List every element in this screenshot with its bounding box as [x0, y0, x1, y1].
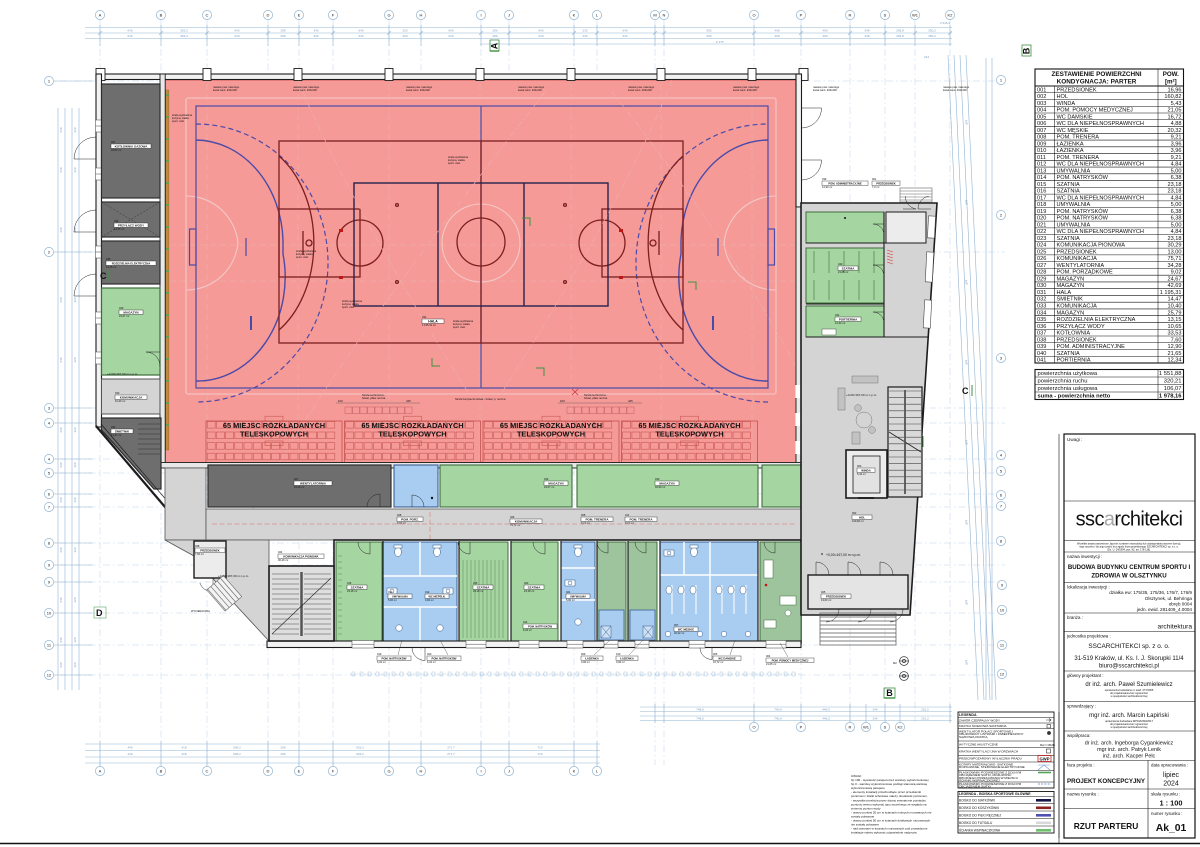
svg-text:038: 038: [195, 544, 200, 548]
svg-text:640: 640: [538, 29, 543, 33]
svg-text:I: I: [480, 768, 481, 773]
svg-text:30,29 m²: 30,29 m²: [278, 558, 288, 562]
svg-text:350,2: 350,2: [928, 29, 936, 33]
svg-text:POM. TRENERA: POM. TRENERA: [629, 517, 653, 521]
svg-text:POM. TRENERA: POM. TRENERA: [1057, 135, 1100, 141]
svg-text:75,71: 75,71: [1168, 256, 1182, 262]
svg-text:10: 10: [47, 610, 52, 615]
svg-text:320: 320: [73, 597, 77, 602]
svg-text:P: P: [800, 12, 803, 17]
svg-text:032: 032: [1037, 297, 1046, 303]
svg-text:w specjalności architektoniczn: w specjalności architektonicznej: [1111, 725, 1148, 729]
svg-text:KOMUNIKACJA: KOMUNIKACJA: [120, 395, 143, 399]
svg-text:suma - powierzchnia netto: suma - powierzchnia netto: [1038, 394, 1111, 400]
svg-text:5,00 m²: 5,00 m²: [388, 598, 397, 602]
svg-text:SZATNIA: SZATNIA: [1057, 182, 1080, 188]
svg-text:021: 021: [1037, 222, 1046, 228]
svg-text:018: 018: [1037, 202, 1046, 208]
svg-text:002: 002: [852, 511, 857, 515]
svg-text:640: 640: [234, 29, 239, 33]
svg-text:9,02 m²: 9,02 m²: [397, 521, 406, 525]
svg-text:235: 235: [582, 29, 587, 33]
svg-text:WENTYLATORNIA: WENTYLATORNIA: [1057, 263, 1105, 269]
svg-text:296: 296: [280, 746, 285, 750]
svg-text:ŚCIANKA WSPINACZKOWA: ŚCIANKA WSPINACZKOWA: [959, 828, 1001, 833]
svg-text:13,00: 13,00: [1168, 249, 1182, 255]
svg-text:640: 640: [59, 597, 63, 602]
svg-text:SZATNIA: SZATNIA: [842, 266, 856, 270]
svg-text:PRZYŁĄCZ WODY: PRZYŁĄCZ WODY: [118, 223, 144, 227]
svg-text:ROZDZIELNIA ELEKTRYCZNA: ROZDZIELNIA ELEKTRYCZNA: [1057, 317, 1136, 323]
svg-text:numer rysunku :: numer rysunku :: [1151, 811, 1182, 816]
svg-text:25,79: 25,79: [1168, 310, 1182, 316]
svg-text:ŁAZIENKA: ŁAZIENKA: [1057, 148, 1084, 154]
svg-text:A: A: [490, 42, 500, 49]
svg-text:010: 010: [616, 652, 621, 656]
svg-text:WC DLA NIEPEŁNOSPRAWNYCH: WC DLA NIEPEŁNOSPRAWNYCH: [1057, 121, 1144, 127]
svg-text:640: 640: [59, 662, 63, 667]
svg-text:2024: 2024: [1163, 781, 1179, 788]
svg-text:640: 640: [59, 357, 63, 362]
svg-text:5,00: 5,00: [1171, 168, 1182, 174]
svg-text:Olsztynek, ul. Behringa: Olsztynek, ul. Behringa: [1145, 596, 1193, 601]
svg-text:296,8: 296,8: [896, 34, 904, 38]
svg-text:PROJEKT KONCEPCYJNY: PROJEKT KONCEPCYJNY: [1067, 778, 1146, 785]
svg-text:31-519 Kraków, ul. Ks. I. J. S: 31-519 Kraków, ul. Ks. I. J. Skorupki 11…: [1074, 656, 1184, 662]
svg-text:kanal went. 400x200: kanal went. 400x200: [813, 88, 837, 92]
svg-text:246: 246: [872, 717, 877, 721]
svg-text:42,69: 42,69: [1168, 283, 1182, 289]
svg-text:640: 640: [59, 637, 63, 642]
svg-text:320,21: 320,21: [1164, 379, 1182, 385]
svg-text:kanal went. 400x200: kanal went. 400x200: [406, 88, 430, 92]
svg-text:A: A: [99, 12, 102, 17]
svg-text:1 195,31: 1 195,31: [1160, 290, 1182, 296]
svg-text:branża :: branża :: [1067, 615, 1083, 620]
svg-text:sport. zasl.: sport. zasl.: [296, 255, 309, 259]
svg-text:035: 035: [106, 257, 111, 261]
svg-text:932,2: 932,2: [356, 746, 364, 750]
svg-text:POM. POMOCY MEDYCZNEJ: POM. POMOCY MEDYCZNEJ: [1057, 108, 1134, 114]
svg-text:5,43: 5,43: [1171, 101, 1182, 107]
svg-text:faza projektu :: faza projektu :: [1067, 763, 1095, 768]
svg-text:362,3: 362,3: [180, 29, 188, 33]
svg-text:ZDROWIA W OLSZTYNKU: ZDROWIA W OLSZTYNKU: [1091, 573, 1167, 580]
svg-text:obręb 0004: obręb 0004: [1169, 602, 1193, 607]
svg-text:710: 710: [537, 752, 542, 756]
svg-text:350,2: 350,2: [928, 34, 936, 38]
svg-text:320: 320: [73, 637, 77, 642]
svg-text:POM. TRENERA: POM. TRENERA: [1057, 155, 1100, 161]
svg-text:160,82 m²: 160,82 m²: [852, 519, 864, 523]
svg-text:B: B: [160, 768, 163, 773]
svg-text:nazwa inwestycji :: nazwa inwestycji :: [1067, 554, 1102, 559]
svg-text:001: 001: [1037, 87, 1046, 93]
svg-text:+0,00=167,00 m n.p.m.: +0,00=167,00 m n.p.m.: [107, 372, 138, 376]
svg-text:PRZEDSIONEK: PRZEDSIONEK: [1057, 87, 1097, 93]
svg-text:E: E: [298, 12, 301, 17]
svg-text:362,3: 362,3: [180, 34, 188, 38]
svg-text:dr inż. arch. Paweł Szumielewi: dr inż. arch. Paweł Szumielewicz: [1085, 682, 1172, 688]
svg-text:100: 100: [560, 399, 565, 403]
svg-text:33,53: 33,53: [1168, 331, 1182, 337]
svg-text:S: S: [884, 12, 887, 17]
svg-text:LEGENDA: LEGENDA: [959, 713, 977, 717]
svg-text:019: 019: [1037, 209, 1046, 215]
svg-text:42,69 m²: 42,69 m²: [655, 485, 665, 489]
svg-text:009: 009: [1037, 141, 1046, 147]
svg-text:SZATNIA: SZATNIA: [1057, 351, 1080, 357]
svg-text:futsal, pilka reczna: futsal, pilka reczna: [584, 396, 608, 400]
svg-text:UMYWALNIA: UMYWALNIA: [1057, 222, 1091, 228]
svg-text:640: 640: [234, 34, 239, 38]
svg-text:OBCIĄŻENIEM SIATKI: OBCIĄŻENIEM SIATKI: [959, 784, 991, 789]
svg-text:[m²]: [m²]: [1165, 79, 1177, 86]
svg-text:A: A: [99, 768, 102, 773]
svg-text:Rw>=45dB: Rw>=45dB: [1040, 743, 1055, 747]
svg-text:G: G: [387, 768, 390, 773]
svg-text:030: 030: [1037, 283, 1046, 289]
svg-text:5,43 m²: 5,43 m²: [857, 472, 866, 476]
svg-text:O: O: [752, 724, 755, 729]
svg-text:14,47: 14,47: [1168, 297, 1182, 303]
svg-text:SZATNIA: SZATNIA: [528, 585, 542, 589]
svg-text:KOTŁOWNIA GAZOWA: KOTŁOWNIA GAZOWA: [115, 144, 149, 148]
svg-text:H: H: [420, 768, 423, 773]
svg-text:14,47 m²: 14,47 m²: [111, 433, 121, 437]
svg-text:D: D: [267, 12, 270, 17]
svg-text:ŁAZIENKA: ŁAZIENKA: [620, 656, 634, 660]
svg-text:446,5: 446,5: [822, 717, 830, 721]
svg-text:TELESKOPOWYCH: TELESKOPOWYCH: [378, 430, 446, 439]
svg-text:418: 418: [181, 752, 186, 756]
svg-text:640: 640: [59, 227, 63, 232]
svg-text:34,28: 34,28: [1168, 263, 1182, 269]
svg-text:014: 014: [523, 620, 528, 624]
svg-text:286: 286: [492, 29, 497, 33]
svg-text:20,32: 20,32: [1168, 128, 1182, 134]
svg-text:KOMUNIKACJA PIONOWA: KOMUNIKACJA PIONOWA: [283, 554, 318, 558]
svg-text:+0,00=167,00 m n.p.m.: +0,00=167,00 m n.p.m.: [846, 393, 877, 397]
svg-text:640: 640: [622, 29, 627, 33]
svg-text:201,2: 201,2: [921, 708, 929, 712]
svg-text:M: M: [653, 12, 656, 17]
svg-text:powierzchnia użytkowa: powierzchnia użytkowa: [1038, 371, 1098, 377]
svg-text:WC MĘSKIE: WC MĘSKIE: [1057, 128, 1089, 134]
svg-text:23,18 m²: 23,18 m²: [473, 589, 483, 593]
svg-text:271,7: 271,7: [447, 746, 455, 750]
svg-text:BOISKO DO FUTSALU: BOISKO DO FUTSALU: [959, 821, 993, 825]
svg-text:C: C: [206, 12, 209, 17]
svg-text:9,21: 9,21: [1171, 155, 1182, 161]
svg-text:320: 320: [73, 547, 77, 552]
svg-text:8 175: 8 175: [716, 40, 724, 44]
svg-text:031: 031: [422, 315, 427, 319]
svg-text:WYCIERACZKA: WYCIERACZKA: [191, 609, 210, 613]
svg-text:w specjalności architektoniczn: w specjalności architektonicznej: [1111, 694, 1148, 698]
svg-text:R: R: [849, 724, 852, 729]
svg-text:006: 006: [1037, 121, 1046, 127]
svg-text:4,84 m²: 4,84 m²: [425, 598, 434, 602]
svg-text:5,00 m²: 5,00 m²: [566, 598, 575, 602]
svg-text:KOMUNIKACJA: KOMUNIKACJA: [515, 519, 538, 523]
svg-text:014: 014: [1037, 175, 1046, 181]
svg-text:PORTIERNIA: PORTIERNIA: [1057, 358, 1091, 364]
svg-text:039: 039: [822, 177, 827, 181]
svg-text:235: 235: [582, 34, 587, 38]
svg-text:R2: R2: [893, 661, 897, 665]
svg-text:lokalizacja inwestycji :: lokalizacja inwestycji :: [1067, 585, 1110, 590]
svg-text:320: 320: [402, 29, 407, 33]
svg-text:K2: K2: [948, 12, 954, 17]
svg-text:SZATNIA: SZATNIA: [1057, 189, 1080, 195]
svg-text:J: J: [508, 768, 510, 773]
svg-text:kanal went. 400x200: kanal went. 400x200: [293, 88, 317, 92]
svg-text:246: 246: [872, 708, 877, 712]
svg-text:HALA: HALA: [1057, 290, 1072, 296]
svg-text:296: 296: [280, 752, 285, 756]
svg-text:PORTIERNIA: PORTIERNIA: [839, 317, 858, 321]
svg-text:6,38: 6,38: [1171, 209, 1182, 215]
svg-text:16,96: 16,96: [1168, 87, 1182, 93]
svg-text:KOTŁOWNIA: KOTŁOWNIA: [1057, 331, 1091, 337]
svg-text:ZESTAWIENIE POWIERZCHNI: ZESTAWIENIE POWIERZCHNI: [1051, 71, 1141, 78]
svg-text:POM. POMOCY MEDYCZNEJ: POM. POMOCY MEDYCZNEJ: [772, 658, 809, 662]
svg-text:POM. TRENERA: POM. TRENERA: [585, 517, 609, 521]
svg-text:UMYWALNIA: UMYWALNIA: [392, 594, 408, 598]
svg-text:GWP: GWP: [1040, 756, 1050, 761]
svg-text:4,84: 4,84: [1171, 229, 1182, 235]
svg-text:6,32 m²: 6,32 m²: [427, 660, 436, 664]
svg-text:023: 023: [1037, 236, 1046, 242]
svg-text:B: B: [886, 688, 893, 698]
svg-text:jednostka projektowa :: jednostka projektowa :: [1066, 634, 1111, 639]
svg-text:SSCARCHITEKCI sp. z o. o.: SSCARCHITEKCI sp. z o. o.: [1088, 643, 1170, 650]
svg-text:MAGAZYN: MAGAZYN: [548, 481, 563, 485]
svg-text:lipiec: lipiec: [1163, 772, 1179, 779]
svg-text:6,32 m²: 6,32 m²: [523, 628, 532, 632]
svg-text:418: 418: [181, 746, 186, 750]
svg-text:HOL: HOL: [859, 515, 866, 519]
svg-text:298: 298: [280, 29, 285, 33]
svg-text:3,96: 3,96: [1171, 141, 1182, 147]
svg-text:TELESKOPOWYCH: TELESKOPOWYCH: [517, 430, 585, 439]
svg-text:SZATNIA: SZATNIA: [1057, 236, 1080, 242]
svg-text:KOMUNIKACJA: KOMUNIKACJA: [1057, 256, 1098, 262]
svg-text:mgr inż. arch. Marcin Łapiński: mgr inż. arch. Marcin Łapiński: [1089, 713, 1169, 719]
svg-text:MAGAZYN: MAGAZYN: [1057, 276, 1085, 282]
svg-text:WC MĘSKIE: WC MĘSKIE: [678, 627, 694, 631]
svg-text:001: 001: [872, 177, 877, 181]
svg-text:MAGAZYN: MAGAZYN: [659, 481, 674, 485]
svg-text:932,2: 932,2: [356, 752, 364, 756]
svg-text:24,67 m²: 24,67 m²: [119, 314, 129, 318]
svg-text:12,34: 12,34: [1168, 358, 1182, 364]
svg-text:sport. zasl.: sport. zasl.: [172, 119, 185, 123]
svg-text:ROZSUWANE, STEROWANE ELEKTRYCZ: ROZSUWANE, STEROWANE ELEKTRYCZNIE: [959, 765, 1025, 769]
svg-text:instalacje należy wykonać odpo: instalacje należy wykonać odpowiednie na…: [851, 831, 917, 835]
svg-text:1 195,31 m²: 1 195,31 m²: [422, 323, 436, 327]
svg-text:029: 029: [1037, 276, 1046, 282]
svg-text:kanal went. 400x200: kanal went. 400x200: [518, 88, 542, 92]
svg-text:13,15 m²: 13,15 m²: [106, 265, 116, 269]
svg-text:445: 445: [406, 399, 411, 403]
svg-text:SZATNIA: SZATNIA: [351, 585, 365, 589]
svg-text:jedn. ewid. 281409_4.0004: jedn. ewid. 281409_4.0004: [1136, 607, 1193, 612]
svg-text:12: 12: [1000, 671, 1005, 676]
svg-text:MAGAZYN: MAGAZYN: [1057, 283, 1085, 289]
svg-text:244: 244: [924, 55, 929, 59]
svg-text:ROZDZIELNIA ELEKTRYCZNA: ROZDZIELNIA ELEKTRYCZNA: [112, 261, 151, 265]
svg-text:LEGENDA - BOISKA SPORTOWE GŁÓW: LEGENDA - BOISKA SPORTOWE GŁÓWNE: [959, 791, 1031, 796]
svg-text:039: 039: [1037, 344, 1046, 350]
svg-text:12: 12: [47, 672, 52, 677]
svg-text:12,90: 12,90: [1168, 344, 1182, 350]
svg-text:905: 905: [706, 29, 711, 33]
svg-text:PRZEDSIONEK: PRZEDSIONEK: [876, 181, 895, 185]
svg-text:12,90 m²: 12,90 m²: [822, 185, 832, 189]
svg-text:1 551,88: 1 551,88: [1159, 371, 1182, 377]
svg-text:640: 640: [127, 34, 132, 38]
svg-text:002: 002: [1037, 94, 1046, 100]
svg-text:020: 020: [427, 652, 432, 656]
svg-text:HOL: HOL: [1057, 94, 1069, 100]
svg-text:320: 320: [73, 227, 77, 232]
svg-text:ŚMIETNIK: ŚMIETNIK: [115, 428, 130, 433]
svg-text:skala rysunku :: skala rysunku :: [1151, 792, 1180, 797]
svg-text:016: 016: [1037, 189, 1046, 195]
svg-text:7,60: 7,60: [1171, 337, 1182, 343]
svg-text:640: 640: [59, 127, 63, 132]
svg-text:futsal, pilka reczna: futsal, pilka reczna: [362, 396, 386, 400]
svg-text:12,34 m²: 12,34 m²: [835, 321, 845, 325]
svg-text:490: 490: [822, 34, 827, 38]
svg-text:320: 320: [73, 662, 77, 667]
svg-text:POM. NATRYSKÓW: POM. NATRYSKÓW: [1057, 215, 1109, 222]
svg-text:271,7: 271,7: [447, 752, 455, 756]
svg-text:mgr inż. arch. Patryk Lenik: mgr inż. arch. Patryk Lenik: [1097, 747, 1161, 753]
svg-text:+0,00=167,00 m n.p.m.: +0,00=167,00 m n.p.m.: [218, 574, 249, 578]
svg-text:23,18 m²: 23,18 m²: [347, 589, 357, 593]
svg-text:16,72 m²: 16,72 m²: [713, 660, 723, 664]
svg-text:Ak_01: Ak_01: [1156, 823, 1187, 834]
svg-text:inż. arch. Kacper Pelc: inż. arch. Kacper Pelc: [1103, 754, 1156, 760]
svg-text:główny projektant :: główny projektant :: [1067, 673, 1104, 678]
svg-text:640: 640: [59, 462, 63, 467]
svg-text:286: 286: [492, 34, 497, 38]
svg-text:G: G: [387, 12, 390, 17]
svg-text:PRZEDSIONEK: PRZEDSIONEK: [1057, 249, 1097, 255]
svg-text:031: 031: [1037, 290, 1046, 296]
svg-text:348: 348: [864, 29, 869, 33]
svg-text:490: 490: [822, 29, 827, 33]
svg-text:012: 012: [425, 590, 430, 594]
svg-text:4,84: 4,84: [1171, 195, 1182, 201]
svg-text:sprawdzający :: sprawdzający :: [1067, 704, 1096, 709]
svg-text:N: N: [663, 12, 666, 17]
svg-text:004: 004: [766, 654, 771, 658]
svg-text:440: 440: [127, 752, 132, 756]
svg-text:748,6: 748,6: [696, 717, 704, 721]
svg-text:468: 468: [774, 29, 779, 33]
svg-text:468: 468: [774, 34, 779, 38]
svg-text:13,15: 13,15: [1168, 317, 1182, 323]
svg-text:SĄŻKOWĄ KRATKĄ: SĄŻKOWĄ KRATKĄ: [959, 734, 988, 739]
svg-text:015: 015: [1037, 182, 1046, 188]
svg-text:+0,00=167,00 m n.p.m.: +0,00=167,00 m n.p.m.: [826, 553, 861, 557]
svg-text:9,21 m²: 9,21 m²: [581, 521, 590, 525]
svg-text:640: 640: [538, 34, 543, 38]
svg-text:9,02: 9,02: [1171, 270, 1182, 276]
svg-text:022: 022: [1037, 229, 1046, 235]
svg-text:010: 010: [1037, 148, 1046, 154]
svg-text:445: 445: [628, 399, 633, 403]
svg-text:KOMUNIKACJA PIONOWA: KOMUNIKACJA PIONOWA: [1057, 243, 1126, 249]
svg-text:640: 640: [358, 29, 363, 33]
svg-text:038: 038: [1037, 337, 1046, 343]
svg-text:10: 10: [1000, 607, 1005, 612]
svg-text:037: 037: [1037, 331, 1046, 337]
svg-text:sport. zasl.: sport. zasl.: [342, 305, 355, 309]
svg-text:PRZEDSIONEK: PRZEDSIONEK: [826, 594, 846, 598]
svg-text:KRATKA ŚCIEKOWA SANITARNA: KRATKA ŚCIEKOWA SANITARNA: [959, 723, 1007, 728]
svg-text:E: E: [298, 768, 301, 773]
svg-text:W1: W1: [912, 12, 919, 17]
svg-text:POW.: POW.: [1163, 71, 1179, 78]
svg-text:13,00 m²: 13,00 m²: [821, 598, 831, 602]
svg-text:013: 013: [388, 590, 393, 594]
svg-text:BUDOWA BUDYNKU CENTRUM SPORTU: BUDOWA BUDYNKU CENTRUM SPORTU I: [1068, 564, 1191, 571]
svg-text:740,6: 740,6: [774, 708, 782, 712]
svg-text:K2: K2: [898, 724, 904, 729]
svg-text:013: 013: [1037, 168, 1046, 174]
svg-text:sport. zasl.: sport. zasl.: [448, 161, 461, 165]
svg-text:640: 640: [59, 497, 63, 502]
svg-text:B: B: [1022, 47, 1032, 54]
svg-text:21,65: 21,65: [1168, 351, 1182, 357]
svg-text:10,65: 10,65: [1168, 324, 1182, 330]
svg-text:data opracowania :: data opracowania :: [1151, 763, 1188, 768]
svg-text:20,32 m²: 20,32 m²: [674, 631, 684, 635]
svg-text:024: 024: [278, 550, 283, 554]
svg-text:024: 024: [1037, 243, 1046, 249]
svg-text:2 546,2: 2 546,2: [940, 21, 950, 25]
svg-text:BOISKO DO SIATKÓWKI: BOISKO DO SIATKÓWKI: [959, 798, 995, 803]
svg-text:23,18: 23,18: [1168, 182, 1182, 188]
svg-text:WINDA: WINDA: [1057, 101, 1076, 107]
svg-text:446,5: 446,5: [822, 708, 830, 712]
svg-text:O: O: [752, 12, 755, 17]
svg-text:10,65 m²: 10,65 m²: [114, 227, 124, 231]
svg-text:9,21: 9,21: [1171, 135, 1182, 141]
svg-text:3,96 m²: 3,96 m²: [616, 660, 625, 664]
svg-text:PRZEDSIONEK: PRZEDSIONEK: [1057, 337, 1097, 343]
svg-text:WC DAMSKIE: WC DAMSKIE: [718, 656, 736, 660]
svg-text:kanal went. 400x200: kanal went. 400x200: [628, 88, 652, 92]
svg-text:KOMUNIKACJA: KOMUNIKACJA: [1057, 303, 1098, 309]
svg-text:106,07: 106,07: [1164, 386, 1182, 392]
svg-text:3,96: 3,96: [1171, 148, 1182, 154]
svg-text:Uwagi :: Uwagi :: [1067, 437, 1082, 442]
svg-text:TELESKOPOWYCH: TELESKOPOWYCH: [240, 430, 308, 439]
svg-text:MAGAZYN: MAGAZYN: [1057, 310, 1085, 316]
svg-text:027: 027: [294, 477, 299, 481]
svg-text:BOISKO DO PIŁKI RĘCZNEJ: BOISKO DO PIŁKI RĘCZNEJ: [959, 814, 1002, 818]
svg-text:POM. ADMINISTRACYJNE: POM. ADMINISTRACYJNE: [828, 181, 862, 185]
svg-text:296,8: 296,8: [896, 29, 904, 33]
svg-text:powierzchnia usługowa: powierzchnia usługowa: [1038, 386, 1099, 392]
svg-text:16,72: 16,72: [1168, 114, 1182, 120]
